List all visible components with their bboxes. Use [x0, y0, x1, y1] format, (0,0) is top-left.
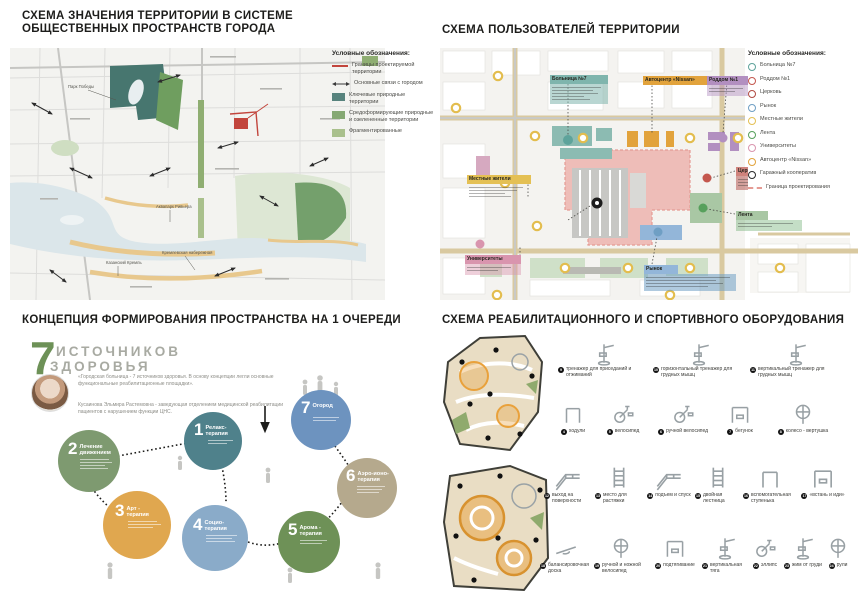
q2-legend-item: Гаражный кооператив — [748, 170, 856, 179]
equipment-item: 18 балансировочная доска — [540, 532, 592, 574]
university-legend-icon — [748, 144, 756, 152]
green-swatch — [332, 111, 345, 119]
roddom-marker — [719, 134, 728, 143]
equipment-icon — [825, 532, 851, 562]
equipment-icon — [727, 398, 753, 428]
bubble-art-therapy: 3 Арт - терапия — [103, 491, 171, 559]
equipment-icon — [752, 532, 778, 562]
q2-legend-item: Больница №7 — [748, 62, 856, 71]
q1-map-label: Кремлевская набережная — [162, 250, 212, 255]
hospital-legend-icon — [748, 63, 756, 71]
q1-legend-item: Границы проектируемой территории — [332, 62, 434, 76]
q2-callout-nissan: Автоцентр «Nissan» — [643, 76, 715, 85]
bubble-movement-therapy: 2 Лечение движением — [58, 430, 120, 492]
q1-legend: Условные обозначения: Границы проектируе… — [332, 50, 434, 142]
q3-title: КОНЦЕПЦИЯ ФОРМИРОВАНИЯ ПРОСТРАНСТВА НА 1… — [22, 314, 432, 327]
equipment-item: 14 подъем и спуск — [646, 462, 692, 499]
q2-callout-residents: Местные жители — [467, 175, 531, 201]
boundary-legend-icon — [748, 187, 762, 189]
q1-legend-item: Фрагментированные — [332, 128, 434, 137]
q1-map-label: Казанский Кремль — [106, 260, 142, 265]
equipment-item: 19 ручной и ножной велосипед — [594, 532, 648, 574]
equipment-item: 20 подтягивание — [650, 532, 700, 569]
equipment-item: 11 вертикальный тренажер для грудных мыш… — [750, 340, 842, 378]
equipment-item: 8 колесо - вертушка — [766, 398, 840, 435]
teal-swatch — [332, 93, 345, 101]
equipment-icon — [553, 532, 579, 562]
red-line-swatch — [332, 65, 348, 67]
presentation-board: СХЕМА ЗНАЧЕНИЯ ТЕРРИТОРИИ В СИСТЕМЕ ОБЩЕ… — [0, 0, 858, 600]
equipment-item: 9 тренажер для приседаний и отжиманий — [558, 340, 650, 378]
church-legend-icon — [748, 90, 756, 98]
equipment-item: 22 эллипс — [748, 532, 782, 569]
equipment-icon — [655, 462, 683, 492]
q4-site-plan-bottom — [440, 462, 552, 596]
nissan-legend-icon — [748, 158, 756, 166]
bubble-socio-therapy: 4 Социо-терапия — [182, 505, 248, 571]
q2-legend-item: Местные жители — [748, 116, 856, 125]
church-marker — [703, 174, 712, 183]
equipment-icon — [605, 462, 633, 492]
q2-legend-item: Церковь — [748, 89, 856, 98]
equipment-icon — [790, 532, 816, 562]
equipment-item: 13 место для растяжки — [595, 462, 643, 504]
equipment-item: 5 велосипед — [598, 398, 648, 435]
equipment-item: 6 ручной велосипед — [652, 398, 714, 435]
q1-map-label: Аквапарк Ривьера — [156, 204, 192, 209]
equipment-icon — [591, 340, 617, 366]
residents-legend-icon — [748, 117, 756, 125]
q2-callout-lenta: Лента — [736, 211, 802, 231]
equipment-icon — [783, 340, 809, 366]
equipment-item: 17 «встань и иди» — [800, 462, 846, 499]
nissan-marker — [647, 134, 657, 144]
equipment-icon — [610, 398, 636, 428]
equipment-icon — [662, 532, 688, 562]
garage-legend-icon — [748, 171, 756, 179]
equipment-icon — [809, 462, 837, 492]
equipment-icon — [670, 398, 696, 428]
equipment-icon — [554, 462, 582, 492]
q1-legend-title: Условные обозначения: — [332, 50, 434, 58]
equipment-icon — [608, 532, 634, 562]
q2-legend-item: Роддом №1 — [748, 76, 856, 85]
q4-title: СХЕМА РЕАБИЛИТАЦИОННОГО И СПОРТИВНОГО ОБ… — [442, 314, 852, 327]
equipment-item: 4 ходули — [552, 398, 594, 435]
rynok-marker — [654, 228, 663, 237]
equipment-item: 7 бегунок — [718, 398, 762, 435]
university-marker — [476, 240, 485, 249]
equipment-item: 10 горизонтальный тренажер для грудных м… — [653, 340, 745, 378]
q1-map-label: Парк Победы — [68, 84, 94, 89]
q1-legend-item: Средоформирующие природные и озелененные… — [332, 110, 434, 124]
equipment-item: 16 вспомогательная ступенька — [743, 462, 797, 504]
q2-legend-item: Граница проектирования — [748, 184, 856, 191]
hospital-marker — [563, 135, 573, 145]
q1-title-line2: ОБЩЕСТВЕННЫХ ПРОСТРАНСТВ ГОРОДА — [22, 23, 422, 36]
q1-city-map: Парк Победы Аквапарк Ривьера Кремлевская… — [10, 48, 385, 300]
equipment-icon — [712, 532, 738, 562]
equipment-item: 12 выход на поверхности — [544, 462, 592, 504]
equipment-item: 21 вертикальная тяга — [702, 532, 748, 574]
equipment-icon — [560, 398, 586, 428]
equipment-icon — [756, 462, 784, 492]
equipment-icon — [686, 340, 712, 366]
q2-callout-hospital: Больница №7 — [550, 75, 608, 104]
q1-title: СХЕМА ЗНАЧЕНИЯ ТЕРРИТОРИИ В СИСТЕМЕ ОБЩЕ… — [22, 10, 422, 36]
q2-legend-item: Лента — [748, 130, 856, 139]
equipment-icon — [704, 462, 732, 492]
q2-callout-universities: Университеты — [465, 255, 521, 275]
q2-title: СХЕМА ПОЛЬЗОВАТЕЛЕЙ ТЕРРИТОРИИ — [442, 24, 842, 37]
q2-legend-item: Автоцентр «Nissan» — [748, 157, 856, 166]
q2-legend-title: Условные обозначения: — [748, 50, 856, 58]
bubble-aero-iono-therapy: 6 Аэро-ионо-терапия — [337, 458, 397, 518]
lenta-legend-icon — [748, 131, 756, 139]
lenta-marker — [699, 204, 708, 213]
equipment-item: 15 двойная лестница — [695, 462, 741, 504]
q2-legend-item: Рынок — [748, 103, 856, 112]
q2-legend: Условные обозначения: Больница №7 Роддом… — [748, 50, 856, 195]
q1-title-line1: СХЕМА ЗНАЧЕНИЯ ТЕРРИТОРИИ В СИСТЕМЕ — [22, 10, 422, 23]
bubble-aroma-therapy: 5 Арома - терапия — [278, 511, 340, 573]
equipment-item: 24 рули — [824, 532, 852, 569]
q2-callout-market: Рынок — [644, 265, 736, 291]
equipment-icon — [790, 398, 816, 428]
double-arrow-swatch — [332, 81, 350, 87]
light-green-swatch — [332, 129, 345, 137]
market-legend-icon — [748, 104, 756, 112]
q1-legend-item: Основные связи с городом — [332, 80, 434, 87]
roddom-legend-icon — [748, 77, 756, 85]
q1-legend-item: Ключевые природные территории — [332, 92, 434, 106]
q2-legend-item: Университеты — [748, 143, 856, 152]
q2-callout-roddom: Роддом №1 — [707, 76, 751, 96]
bubble-garden: 7 Огород — [291, 390, 351, 450]
bubble-relax-therapy: 1 Релакс-терапия — [184, 412, 242, 470]
q4-site-plan-top — [440, 332, 546, 456]
equipment-item: 23 жим от груди — [782, 532, 824, 569]
